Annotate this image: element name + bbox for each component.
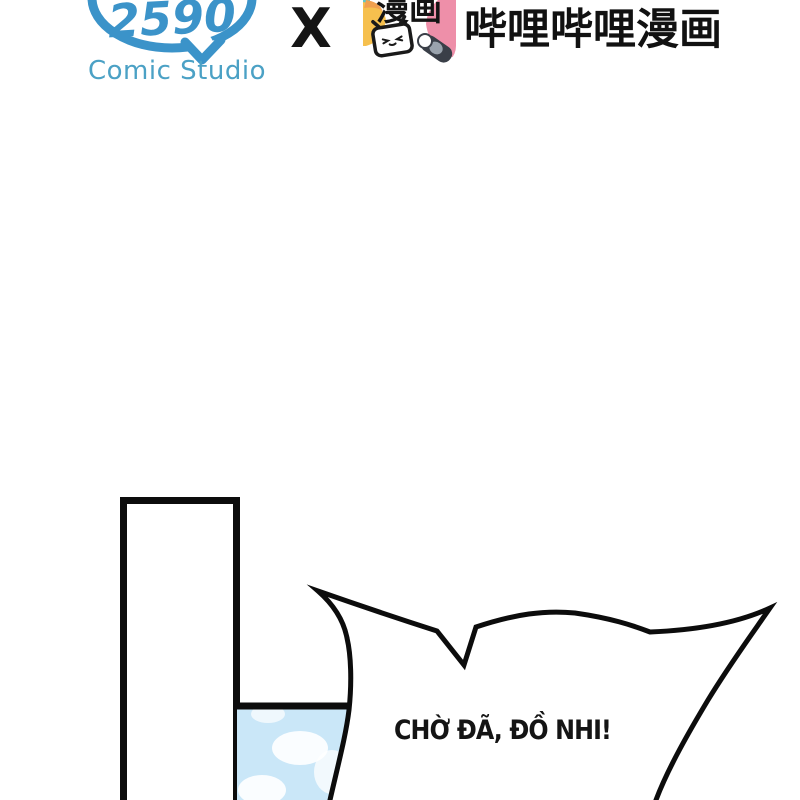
pillar-rectangle — [124, 501, 237, 800]
speech-bubble — [318, 591, 770, 800]
comic-panel-art — [0, 0, 800, 800]
speech-bubble-text: CHỜ ĐÃ, ĐỒ NHI! — [394, 714, 611, 748]
comic-page: 2590 Comic Studio X 漫画 — [0, 0, 800, 800]
